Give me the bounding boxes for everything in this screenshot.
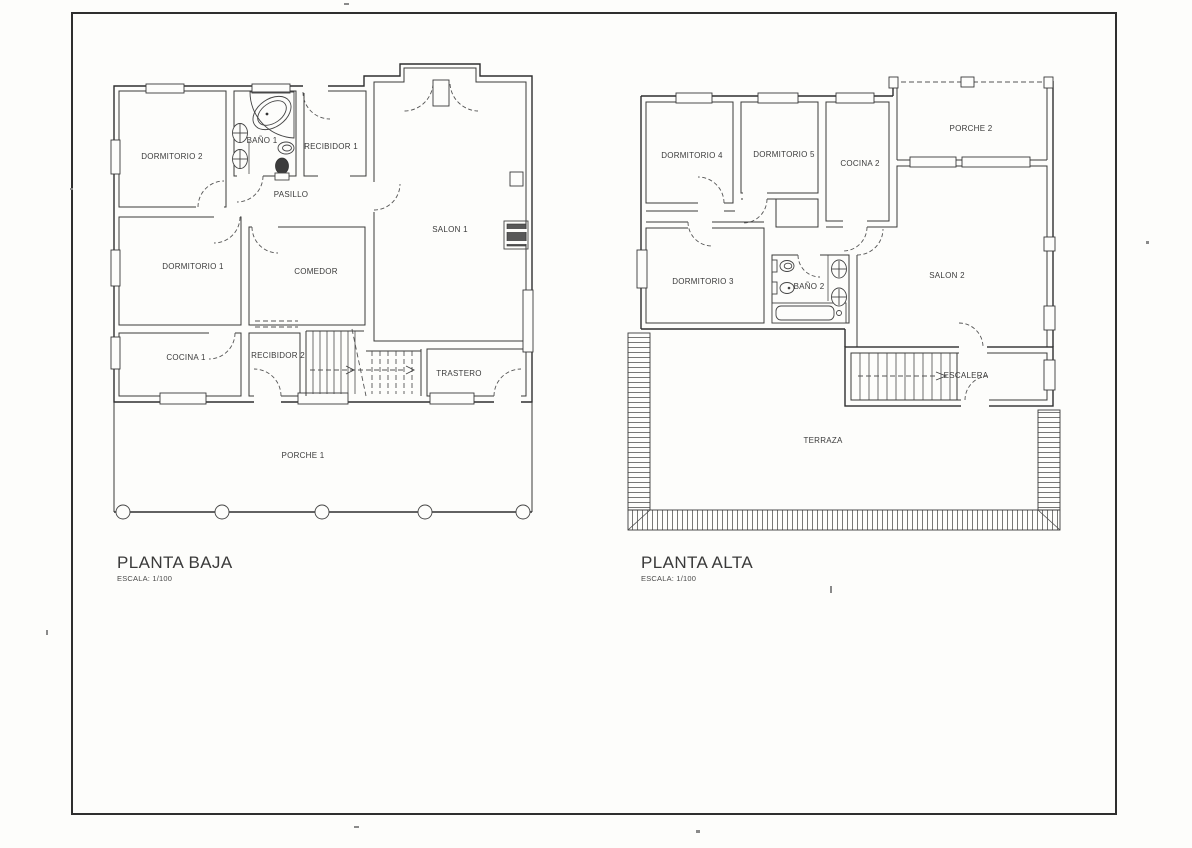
terrace-roof-hatch-icon — [628, 333, 1060, 530]
bidet-icon — [278, 142, 294, 154]
porch-column-icon — [516, 505, 530, 519]
sheet-border — [72, 13, 1116, 814]
porch-column-icon — [418, 505, 432, 519]
room-label-terraza: TERRAZA — [803, 436, 843, 445]
room-label-cocina-1: COCINA 1 — [166, 353, 206, 362]
toilet-icon — [772, 260, 794, 272]
room-labels: DORMITORIO 4 DORMITORIO 5 COCINA 2 PORCH… — [661, 124, 993, 445]
room-label-porche-2: PORCHE 2 — [950, 124, 993, 133]
plan-title-block: PLANTA BAJA ESCALA: 1/100 — [117, 553, 233, 583]
planta-alta-plan: DORMITORIO 4 DORMITORIO 5 COCINA 2 PORCH… — [628, 77, 1060, 583]
bidet-icon — [772, 282, 794, 294]
room-label-dormitorio-1: DORMITORIO 1 — [162, 262, 224, 271]
double-entry-door-icon — [404, 84, 433, 111]
floorplan-drawing: DORMITORIO 2 BAÑO 1 RECIBIDOR 1 PASILLO … — [0, 0, 1192, 848]
room-label-dormitorio-2: DORMITORIO 2 — [141, 152, 203, 161]
stairs-icon — [306, 329, 421, 396]
porch-column-icon — [116, 505, 130, 519]
room-labels: DORMITORIO 2 BAÑO 1 RECIBIDOR 1 PASILLO … — [141, 136, 482, 460]
corner-bathtub-icon — [247, 89, 297, 138]
plan-scale-planta-alta: ESCALA: 1/100 — [641, 574, 696, 583]
windows — [637, 93, 1055, 390]
plan-title-planta-alta: PLANTA ALTA — [641, 553, 753, 572]
stairs-icon — [858, 353, 950, 400]
porch-column-icon — [215, 505, 229, 519]
room-label-trastero: TRASTERO — [436, 369, 482, 378]
room-label-recibidor-1: RECIBIDOR 1 — [304, 142, 358, 151]
toilet-icon — [275, 158, 289, 180]
bathtub-icon — [772, 303, 846, 323]
room-label-comedor: COMEDOR — [294, 267, 338, 276]
room-label-porche-1: PORCHE 1 — [282, 451, 325, 460]
fireplace-icon — [504, 221, 528, 249]
washbasin-icon — [832, 260, 847, 278]
room-label-dormitorio-3: DORMITORIO 3 — [672, 277, 734, 286]
scanned-floorplan-sheet: DORMITORIO 2 BAÑO 1 RECIBIDOR 1 PASILLO … — [0, 0, 1192, 848]
washbasin-icon — [233, 124, 248, 143]
bathroom-2-fixtures — [772, 260, 847, 323]
stair-direction-arrow-icon — [858, 372, 946, 380]
washbasin-icon — [832, 288, 847, 306]
plan-title-planta-baja: PLANTA BAJA — [117, 553, 233, 572]
room-label-cocina-2: COCINA 2 — [840, 159, 880, 168]
room-label-bano-2: BAÑO 2 — [794, 282, 825, 291]
room-label-salon-1: SALON 1 — [432, 225, 468, 234]
bathroom-1-fixtures — [233, 89, 298, 180]
room-label-salon-2: SALON 2 — [929, 271, 965, 280]
room-label-bano-1: BAÑO 1 — [247, 136, 278, 145]
porch-roof-dashed-icon — [889, 77, 1053, 88]
entry-door-mullion — [433, 80, 449, 106]
plan-scale-planta-baja: ESCALA: 1/100 — [117, 574, 172, 583]
walls — [114, 64, 532, 512]
planta-baja-plan: DORMITORIO 2 BAÑO 1 RECIBIDOR 1 PASILLO … — [111, 64, 533, 583]
porch-column-icon — [315, 505, 329, 519]
room-label-dormitorio-4: DORMITORIO 4 — [661, 151, 723, 160]
stair-direction-arrow-icon — [310, 366, 414, 374]
room-label-recibidor-2: RECIBIDOR 2 — [251, 351, 305, 360]
room-label-dormitorio-5: DORMITORIO 5 — [753, 150, 815, 159]
wall-pier — [510, 172, 523, 186]
room-label-pasillo: PASILLO — [274, 190, 309, 199]
room-label-escalera: ESCALERA — [944, 371, 989, 380]
washbasin-icon — [233, 150, 248, 169]
plan-title-block: PLANTA ALTA ESCALA: 1/100 — [641, 553, 753, 583]
